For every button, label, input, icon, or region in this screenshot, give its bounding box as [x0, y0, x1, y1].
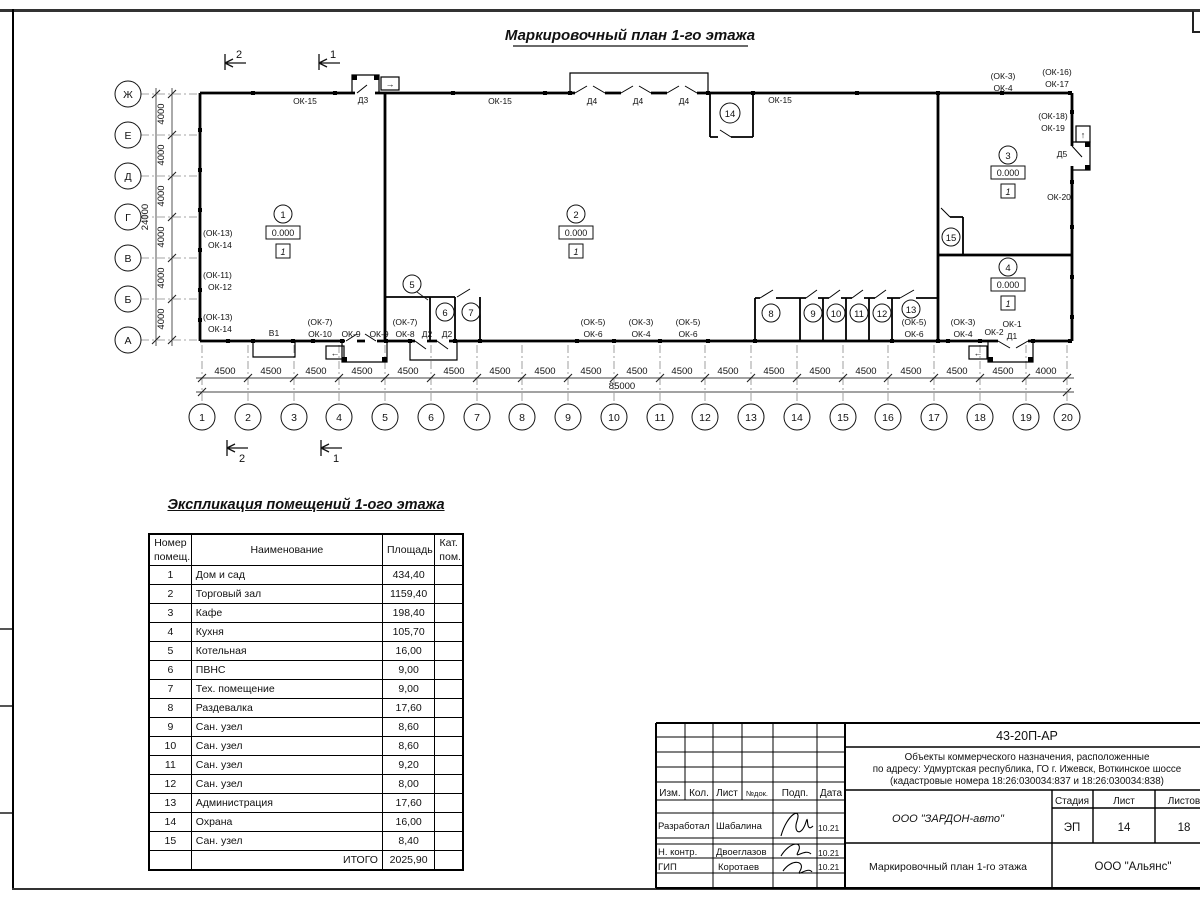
room-area-cell: 16,00 [382, 813, 434, 832]
bottom-axis-labels: 1 2 3 4 5 6 7 8 9 10 11 12 13 14 15 16 1… [199, 412, 1073, 424]
dim-bay: 4500 [489, 366, 510, 377]
opening-label: (ОК-5) [902, 317, 927, 327]
opening-label: (ОК-7) [393, 317, 418, 327]
wall-labels: ОК-15 Д3 ОК-15 Д4 Д4 Д4 ОК-15 (ОК-3) ОК-… [203, 67, 1072, 341]
room-cat-cell [435, 756, 463, 775]
sheets-label: Листов [1168, 796, 1200, 807]
opening-label: (ОК-5) [676, 317, 701, 327]
room-name-cell: Тех. помещение [191, 680, 382, 699]
dim-left-bay: 4000 [156, 226, 167, 247]
dim-left-total: 24000 [140, 204, 151, 230]
opening-label: ОК-15 [768, 95, 792, 105]
room-cat-cell [435, 699, 463, 718]
room-num-cell: 14 [149, 813, 191, 832]
opening-label: Д4 [587, 96, 598, 106]
axis-label: 14 [791, 412, 803, 424]
project-description-line2: по адресу: Удмуртская республика, ГО г. … [873, 764, 1182, 775]
dimension-lines [152, 88, 1074, 396]
room-num-cell: 6 [149, 661, 191, 680]
total-value-cell: 2025,90 [382, 851, 434, 871]
dim-left-bay: 4000 [156, 144, 167, 165]
opening-label: ОК-8 [395, 329, 414, 339]
dim-end-bay: 4000 [1035, 366, 1056, 377]
section-cut-label: 1 [333, 453, 339, 465]
floor-plan: Маркировочный план 1-го этажа 4500 4500 … [0, 0, 1200, 478]
total-empty-cell [149, 851, 191, 871]
opening-label: Д2 [422, 329, 433, 339]
axis-label: 1 [199, 412, 205, 424]
drawing-sheet: { "plan": { "title": "Маркировочный план… [0, 0, 1200, 900]
table-total-row: ИТОГО 2025,90 [149, 851, 463, 871]
room-number: 15 [946, 233, 957, 244]
table-row: 4Кухня105,70 [149, 623, 463, 642]
room-cat-cell [435, 832, 463, 851]
opening-label: ОК-2 [984, 327, 1003, 337]
room-number: 13 [906, 305, 917, 316]
opening-label: Д2 [442, 329, 453, 339]
room-area-cell: 8,60 [382, 737, 434, 756]
axis-label: 20 [1061, 412, 1073, 424]
room-num-cell: 15 [149, 832, 191, 851]
opening-label: (ОК-7) [308, 317, 333, 327]
table-row: 14Охрана16,00 [149, 813, 463, 832]
room-name-cell: Кухня [191, 623, 382, 642]
axis-label: 17 [928, 412, 940, 424]
opening-label: ОК-10 [308, 329, 332, 339]
explication-table: Номер помещ. Наименование Площадь Кат. п… [148, 533, 464, 871]
opening-label: ОК-15 [488, 96, 512, 106]
room-number: 2 [573, 210, 578, 221]
axis-label: 11 [655, 412, 666, 424]
opening-label: ОК-6 [583, 329, 602, 339]
opening-label: Д3 [358, 95, 369, 105]
room-cat-cell [435, 775, 463, 794]
axis-label: 4 [336, 412, 342, 424]
door-leaves [346, 85, 1082, 349]
room-name-cell: ПВНС [191, 661, 382, 680]
room-name-cell: Сан. узел [191, 756, 382, 775]
document-number: 43-20П-АР [996, 729, 1058, 743]
room-cat-cell [435, 642, 463, 661]
floor-type-mark: 1 [1005, 187, 1010, 197]
axis-label: 18 [974, 412, 986, 424]
col-ndok: №док. [746, 789, 768, 798]
bottom-axis-bubbles [189, 404, 1080, 430]
level-mark: 0.000 [565, 228, 588, 238]
axis-label: 13 [745, 412, 757, 424]
role-name: Коротаев [718, 862, 759, 873]
opening-label: ОК-6 [678, 329, 697, 339]
table-row: 15Сан. узел8,40 [149, 832, 463, 851]
axis-label: 16 [882, 412, 894, 424]
room-cat-cell [435, 737, 463, 756]
opening-label: Д5 [1057, 149, 1068, 159]
room-cat-cell [435, 661, 463, 680]
opening-label: (ОК-3) [951, 317, 976, 327]
axis-label: 3 [291, 412, 297, 424]
sheet-value: 14 [1118, 822, 1131, 834]
room-number: 9 [810, 309, 815, 320]
exit-arrow-icon: ↑ [1081, 130, 1086, 140]
col-data: Дата [820, 788, 843, 799]
stage-label: Стадия [1055, 796, 1089, 807]
dim-bay: 4500 [305, 366, 326, 377]
room-area-cell: 17,60 [382, 794, 434, 813]
axis-label: 12 [699, 412, 711, 424]
room-cat-cell [435, 623, 463, 642]
dim-bay: 4500 [717, 366, 738, 377]
room-number: 6 [442, 308, 447, 319]
left-dimensions: 4000 4000 4000 4000 4000 4000 24000 [140, 103, 167, 329]
table-row: 2Торговый зал1159,40 [149, 585, 463, 604]
room-num-cell: 8 [149, 699, 191, 718]
opening-label: (ОК-5) [581, 317, 606, 327]
opening-label: Д4 [679, 96, 690, 106]
room-number: 14 [725, 109, 736, 120]
opening-label: Д4 [633, 96, 644, 106]
signature-icon [781, 813, 813, 873]
title-block: Изм. Кол. Лист №док. Подп. Дата Разработ… [655, 722, 1200, 889]
room-name-cell: Торговый зал [191, 585, 382, 604]
sheets-value: 18 [1178, 822, 1191, 834]
role-date: 10.21 [818, 862, 840, 872]
stage-value: ЭП [1064, 822, 1081, 834]
role-label: Разработал [658, 821, 710, 832]
table-row: 11Сан. узел9,20 [149, 756, 463, 775]
col-header-category: Кат. пом. [435, 534, 463, 566]
col-header-name: Наименование [191, 534, 382, 566]
room-number: 10 [831, 309, 842, 320]
room-mark-3: 3 0.000 1 [991, 146, 1025, 198]
axis-label: 6 [428, 412, 434, 424]
bottom-dimensions: 4500 4500 4500 4500 4500 4500 4500 4500 … [214, 366, 1056, 392]
opening-label: ОК-15 [293, 96, 317, 106]
dim-bay: 4500 [763, 366, 784, 377]
table-row: 9Сан. узел8,60 [149, 718, 463, 737]
opening-label: ОК-1 [1002, 319, 1021, 329]
dim-left-bay: 4000 [156, 103, 167, 124]
room-cat-cell [435, 718, 463, 737]
axis-label: 15 [837, 412, 849, 424]
opening-label: (ОК-13) [203, 228, 233, 238]
role-date: 10.21 [818, 848, 840, 858]
customer-org: ООО "ЗАРДОН-авто" [892, 813, 1005, 825]
table-title: Экспликация помещений 1-ого этажа [148, 497, 464, 513]
total-label-cell: ИТОГО [191, 851, 382, 871]
axis-label: Б [125, 294, 132, 306]
room-number: 7 [468, 308, 473, 319]
opening-label: ОК-20 [1047, 192, 1071, 202]
section-cut-label: 1 [330, 49, 336, 61]
role-label: ГИП [658, 862, 677, 873]
room-mark-1: 1 0.000 1 [266, 205, 300, 258]
exit-arrow-icon: ← [974, 348, 983, 358]
level-mark: 0.000 [997, 168, 1020, 178]
role-date: 10.21 [818, 823, 840, 833]
dim-bay: 4500 [671, 366, 692, 377]
table-header-row: Номер помещ. Наименование Площадь Кат. п… [149, 534, 463, 566]
dim-bay: 4500 [900, 366, 921, 377]
dim-bay: 4500 [580, 366, 601, 377]
room-name-cell: Кафе [191, 604, 382, 623]
room-area-cell: 105,70 [382, 623, 434, 642]
room-cat-cell [435, 566, 463, 585]
level-mark: 0.000 [997, 280, 1020, 290]
room-area-cell: 16,00 [382, 642, 434, 661]
opening-label: ОК-19 [1041, 123, 1065, 133]
axis-label: В [124, 253, 131, 265]
axis-label: Д [124, 171, 131, 183]
room-name-cell: Сан. узел [191, 775, 382, 794]
axis-label: 7 [474, 412, 480, 424]
axis-label: Е [124, 130, 131, 142]
room-num-cell: 3 [149, 604, 191, 623]
role-name: Шабалина [716, 821, 763, 832]
axis-label: 10 [608, 412, 620, 424]
dim-bay: 4500 [626, 366, 647, 377]
room-cat-cell [435, 680, 463, 699]
room-cat-cell [435, 794, 463, 813]
room-mark-4: 4 0.000 1 [991, 258, 1025, 310]
section-cut-label: 2 [239, 453, 245, 465]
room-name-cell: Раздевалка [191, 699, 382, 718]
room-name-cell: Администрация [191, 794, 382, 813]
exit-arrow-icon: ← [331, 348, 340, 358]
opening-label: (ОК-3) [991, 71, 1016, 81]
room-num-cell: 1 [149, 566, 191, 585]
room-num-cell: 12 [149, 775, 191, 794]
left-axis-labels: Ж Е Д Г В Б А [123, 89, 133, 347]
room-num-cell: 5 [149, 642, 191, 661]
table-row: 12Сан. узел8,00 [149, 775, 463, 794]
design-company: ООО "Альянс" [1095, 861, 1172, 873]
room-name-cell: Дом и сад [191, 566, 382, 585]
dim-bay: 4500 [809, 366, 830, 377]
dim-left-bay: 4000 [156, 267, 167, 288]
table-row: 3Кафе198,40 [149, 604, 463, 623]
opening-label: ОК-9 [341, 329, 360, 339]
dim-bay: 4500 [397, 366, 418, 377]
section-cut-label: 2 [236, 49, 242, 61]
opening-label: ОК-9 [369, 329, 388, 339]
frame-left-tick [0, 628, 12, 630]
col-podp: Подп. [782, 788, 809, 799]
room-area-cell: 9,20 [382, 756, 434, 775]
room-name-cell: Котельная [191, 642, 382, 661]
opening-label: (ОК-13) [203, 312, 233, 322]
walls-interior [385, 93, 963, 341]
room-num-cell: 2 [149, 585, 191, 604]
opening-label: ОК-6 [904, 329, 923, 339]
room-area-cell: 8,00 [382, 775, 434, 794]
floor-type-mark: 1 [1005, 299, 1010, 309]
col-izm: Изм. [659, 788, 680, 799]
axis-label: 19 [1020, 412, 1032, 424]
col-list: Лист [716, 788, 738, 799]
room-name-cell: Сан. узел [191, 832, 382, 851]
dim-bay: 4500 [351, 366, 372, 377]
plan-title: Маркировочный план 1-го этажа [505, 27, 755, 44]
room-area-cell: 1159,40 [382, 585, 434, 604]
room-num-cell: 10 [149, 737, 191, 756]
dim-bay: 4500 [214, 366, 235, 377]
table-row: 8Раздевалка17,60 [149, 699, 463, 718]
frame-left-tick [0, 812, 12, 814]
room-number: 4 [1005, 263, 1010, 274]
table-row: 7Тех. помещение9,00 [149, 680, 463, 699]
room-name-cell: Охрана [191, 813, 382, 832]
table-row: 5Котельная16,00 [149, 642, 463, 661]
room-cat-cell [435, 813, 463, 832]
room-num-cell: 9 [149, 718, 191, 737]
dim-bay: 4500 [443, 366, 464, 377]
room-name-cell: Сан. узел [191, 718, 382, 737]
dim-bay: 4500 [534, 366, 555, 377]
col-header-area: Площадь [382, 534, 434, 566]
level-mark: 0.000 [272, 228, 295, 238]
room-area-cell: 198,40 [382, 604, 434, 623]
opening-label: ОК-4 [631, 329, 650, 339]
explication-section: Экспликация помещений 1-ого этажа Номер … [148, 497, 464, 871]
opening-label: ОК-4 [993, 83, 1012, 93]
table-row: 1Дом и сад434,40 [149, 566, 463, 585]
room-num-cell: 7 [149, 680, 191, 699]
room-area-cell: 9,00 [382, 661, 434, 680]
room-area-cell: 8,40 [382, 832, 434, 851]
floor-type-mark: 1 [573, 247, 578, 257]
dim-left-bay: 4000 [156, 185, 167, 206]
room-bubbles [403, 103, 960, 322]
opening-label: ОК-14 [208, 240, 232, 250]
opening-label: ОК-14 [208, 324, 232, 334]
axis-label: 2 [245, 412, 251, 424]
axis-label: Ж [123, 89, 133, 101]
col-kol: Кол. [689, 788, 709, 799]
table-row: 10Сан. узел8,60 [149, 737, 463, 756]
role-name: Двоеглазов [716, 847, 767, 858]
project-description-line3: (кадастровые номера 18:26:030034:837 и 1… [890, 776, 1164, 787]
room-num-cell: 4 [149, 623, 191, 642]
total-cat-cell [435, 851, 463, 871]
frame-left-tick [0, 705, 12, 707]
axis-label: Г [125, 212, 131, 224]
exit-arrow-icon: → [386, 79, 395, 89]
room-number: 11 [854, 309, 864, 320]
room-area-cell: 434,40 [382, 566, 434, 585]
opening-label: (ОК-16) [1042, 67, 1072, 77]
axis-label: А [124, 335, 131, 347]
opening-label: Д1 [1007, 331, 1018, 341]
opening-label: ОК-12 [208, 282, 232, 292]
room-num-cell: 13 [149, 794, 191, 813]
room-number: 3 [1005, 151, 1010, 162]
opening-label: ОК-17 [1045, 79, 1069, 89]
dim-left-bay: 4000 [156, 308, 167, 329]
walls-outer [200, 93, 1072, 341]
table-row: 13Администрация17,60 [149, 794, 463, 813]
axis-label: 5 [382, 412, 388, 424]
opening-label: (ОК-11) [203, 270, 232, 280]
project-description-line1: Объекты коммерческого назначения, распол… [905, 752, 1150, 763]
col-header-number: Номер помещ. [149, 534, 191, 566]
dim-bay: 4500 [855, 366, 876, 377]
room-mark-2: 2 0.000 1 [559, 205, 593, 258]
room-num-cell: 11 [149, 756, 191, 775]
room-number: 5 [409, 280, 414, 291]
room-area-cell: 8,60 [382, 718, 434, 737]
dim-bay: 4500 [992, 366, 1013, 377]
sheet-label: Лист [1113, 796, 1135, 807]
room-cat-cell [435, 604, 463, 623]
axis-label: 8 [519, 412, 525, 424]
room-cat-cell [435, 585, 463, 604]
opening-label: В1 [269, 328, 280, 338]
dim-total: 85000 [609, 381, 635, 392]
dim-bay: 4500 [946, 366, 967, 377]
opening-label: (ОК-18) [1038, 111, 1068, 121]
room-number: 12 [877, 309, 888, 320]
drawing-name: Маркировочный план 1-го этажа [869, 861, 1027, 873]
table-row: 6ПВНС9,00 [149, 661, 463, 680]
room-area-cell: 9,00 [382, 680, 434, 699]
room-number: 1 [280, 210, 285, 221]
opening-label: (ОК-3) [629, 317, 654, 327]
floor-type-mark: 1 [280, 247, 285, 257]
dim-bay: 4500 [260, 366, 281, 377]
axis-label: 9 [565, 412, 571, 424]
role-label: Н. контр. [658, 847, 697, 858]
opening-label: ОК-4 [953, 329, 972, 339]
room-area-cell: 17,60 [382, 699, 434, 718]
room-number: 8 [768, 309, 773, 320]
room-name-cell: Сан. узел [191, 737, 382, 756]
